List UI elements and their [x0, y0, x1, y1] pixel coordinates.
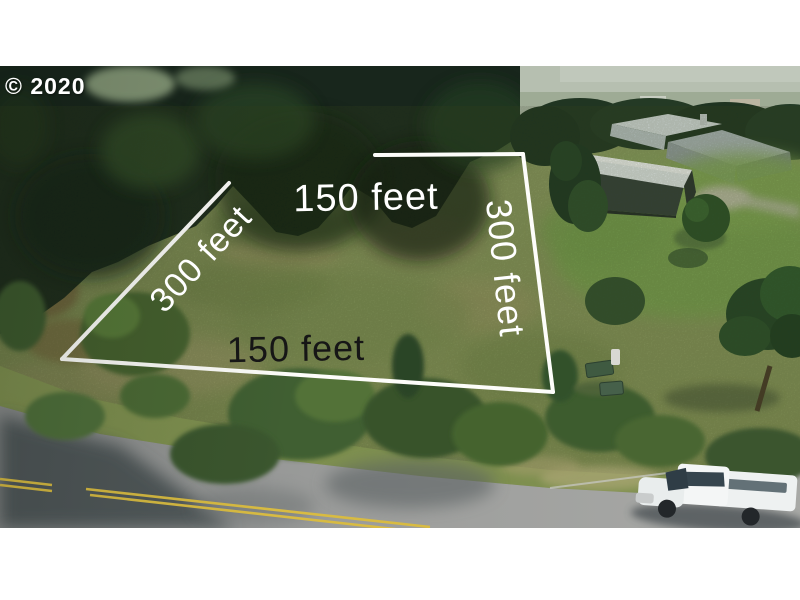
letterbox-top	[0, 0, 800, 66]
letterbox-bottom	[0, 528, 800, 600]
screenshot: 150 feet 300 feet 300 feet 150 feet © 20…	[0, 0, 800, 600]
truck-windows	[683, 470, 726, 489]
truck-grille	[635, 492, 654, 503]
photo-scene	[0, 66, 800, 528]
parcel-line-top	[375, 154, 523, 155]
copyright-watermark: © 2020	[5, 73, 86, 100]
bush-shadow-on-road	[325, 460, 495, 508]
aerial-photo: 150 feet 300 feet 300 feet 150 feet © 20…	[0, 66, 800, 528]
